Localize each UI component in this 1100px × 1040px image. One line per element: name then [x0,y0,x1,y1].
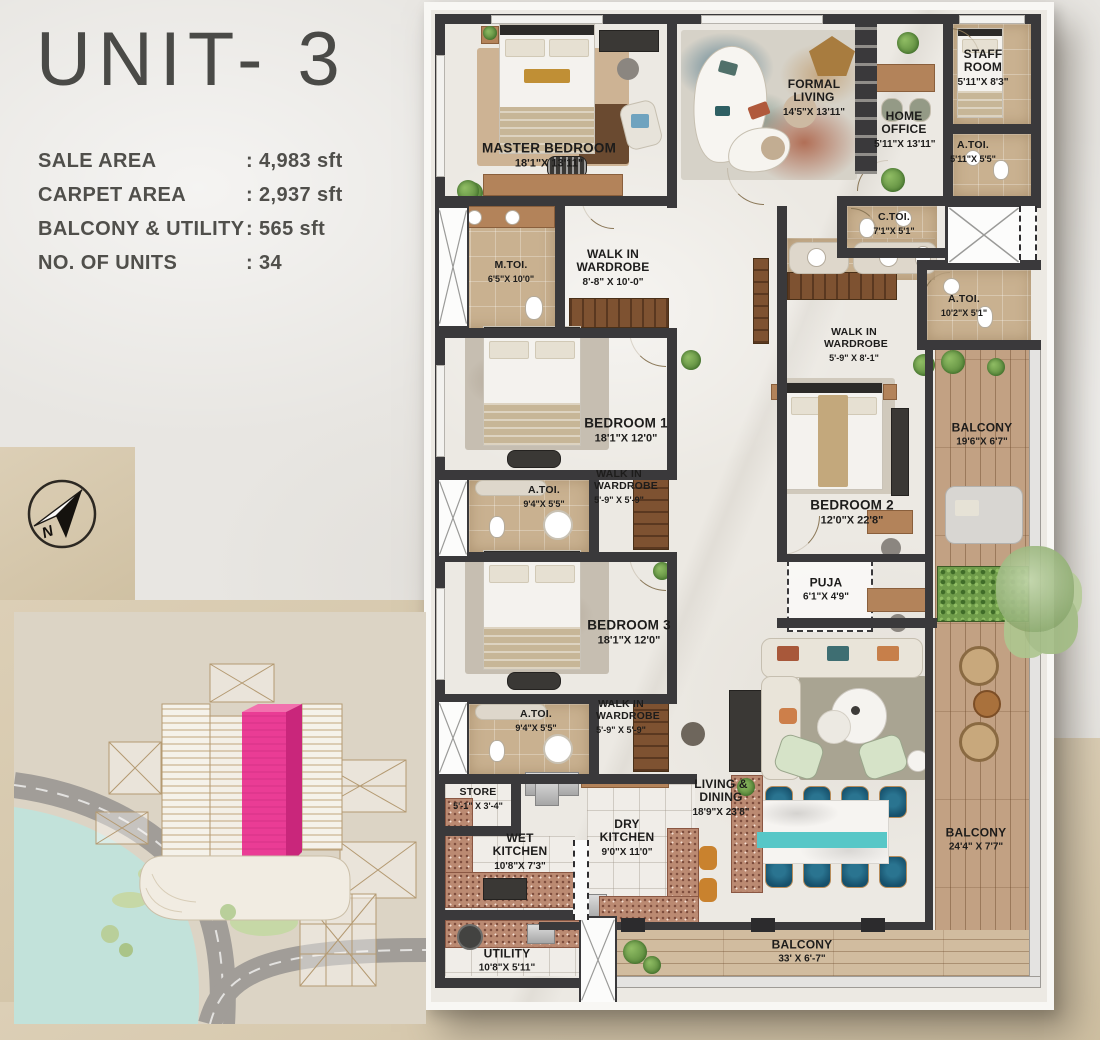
room-dims: 8'-8" X 10'-0" [574,277,652,288]
room-dims: 6'5"X 10'0" [466,274,556,284]
wall [435,328,677,338]
room-name: BEDROOM 1 [561,415,691,430]
room-name: WALK IN WARDROBE [594,469,644,493]
door-post [861,918,885,932]
pillow [489,341,529,359]
stat-row: BALCONY & UTILITY: 565 sft [38,218,383,252]
wall [555,196,565,338]
service-shaft [437,206,469,328]
window [959,15,1025,24]
bed-bench [507,450,561,468]
room-dims: 19'6"X 6'7" [937,437,1027,448]
wicker-chair [959,646,999,686]
room-dims: 18'1"X 12'0" [561,432,691,444]
basin [807,248,826,267]
room-name: DRY KITCHEN [592,818,662,845]
window [491,15,603,24]
stat-value: : 34 [246,252,282,275]
office-desk [871,64,935,92]
round-basin [543,510,573,540]
wall [943,124,1041,134]
room-name: LIVING & DINING [679,778,764,805]
door-arc [727,168,764,205]
room-dims: 18'1"X 13'11" [464,157,634,169]
room-name: M.TOI. [466,260,556,272]
cushion [631,114,649,128]
room-name: A.TOI. [491,709,581,721]
entry-door-dashed [1019,206,1037,260]
bar-chair [699,846,717,870]
room-dims: 10'2"X 5'1" [914,308,1014,318]
room-name: WALK IN WARDROBE [824,327,884,351]
room-label-home-office: HOME OFFICE5'11"X 13'11" [874,110,934,150]
page-title: UNIT- 3 [36,16,347,103]
room-dims: 5'-9" X 5'-9" [594,495,644,505]
room-name: HOME OFFICE [874,110,934,137]
room-name: A.TOI. [914,294,1014,306]
cushion [877,646,899,661]
toilet-wc [489,740,505,762]
plant [897,32,919,54]
wall [777,206,787,562]
room-label-wiw-bedroom3: WALK IN WARDROBE5'-9" X 5'-9" [596,699,646,735]
stat-label: BALCONY & UTILITY [38,218,244,241]
coffee-table-small [817,710,851,744]
tv-unit [891,408,909,496]
cooktop [483,878,527,900]
room-dims: 5'-9" X 5'-9" [596,725,646,735]
floorplan-brochure-page: { "panel": { "title": "UNIT- 3", "stats"… [0,0,1100,1040]
wall [777,618,937,628]
room-name: MASTER BEDROOM [464,140,634,155]
bed-bedroom2 [785,382,883,490]
stat-value: : 4,983 sft [246,150,343,173]
kitchen-partition-dashed [573,840,589,920]
room-dims: 14'5"X 13'11" [769,107,859,118]
stat-label: SALE AREA [38,150,156,173]
room-label-formal-living: FORMAL LIVING14'5"X 13'11" [769,78,859,118]
plant [483,26,497,40]
puja-desk [867,588,933,612]
room-label-bedroom-2: BEDROOM 212'0"X 22'8" [792,497,912,526]
dresser-desk [599,30,659,52]
headboard [786,383,882,393]
room-dims: 9'4"X 5'5" [491,723,581,733]
pouf [779,708,797,724]
room-label-bedroom-3: BEDROOM 318'1"X 12'0" [564,617,694,646]
room-label-living-dining: LIVING & DINING18'9"X 23'8" [679,778,764,818]
room-dims: 10'8"X 5'11" [457,963,557,974]
room-dims: 5'-1" X 3'-4" [438,801,518,811]
pillow [535,565,575,583]
wall [435,978,587,988]
north-compass-icon: N [20,472,104,556]
tree-canopy [996,546,1074,632]
wicker-chair [959,722,999,762]
stat-row: SALE AREA: 4,983 sft [38,150,383,184]
room-dims: 9'0"X 11'0" [592,847,662,858]
wall [435,774,697,784]
room-name: WALK IN WARDROBE [574,248,652,275]
room-dims: 18'1"X 12'0" [564,634,694,646]
room-dims: 5'11"X 5'5" [933,154,1013,164]
wall [917,340,1041,350]
wall [777,554,931,562]
outdoor-table [973,690,1001,718]
basin [505,210,520,225]
basin [467,210,482,225]
window [436,588,445,680]
room-label-wiw-bedroom2: WALK IN WARDROBE5'-9" X 8'-1" [824,327,884,363]
stat-value: : 565 sft [246,218,325,241]
bar-chair [699,878,717,902]
stat-value: : 2,937 sft [246,184,343,207]
room-name: BEDROOM 3 [564,617,694,632]
room-label-staff-room: STAFF ROOM5'11"X 8'3" [954,48,1012,88]
cushion [715,106,730,116]
nightstand [883,384,897,400]
room-label-balcony-right: BALCONY19'6"X 6'7" [937,422,1027,449]
room-dims: 10'8"X 7'3" [485,861,555,872]
stool [681,722,705,746]
pouf [761,136,785,160]
wall [435,552,677,562]
room-name: C.TOI. [849,212,939,224]
wardrobe-rack [787,272,897,300]
pillow [535,341,575,359]
bed-bench [507,672,561,690]
stat-row: CARPET AREA: 2,937 sft [38,184,383,218]
plant [681,350,701,370]
stat-label: CARPET AREA [38,184,186,207]
room-label-c-toi: C.TOI.7'1"X 5'1" [849,212,939,236]
pillow [549,39,589,57]
room-name: BALCONY [931,827,1021,840]
room-label-a-toi-bedroom3: A.TOI.9'4"X 5'5" [491,709,581,733]
corridor-console [753,258,769,344]
room-name: STAFF ROOM [954,48,1012,75]
pillow [505,39,545,57]
room-label-puja: PUJA6'1"X 4'9" [791,577,861,604]
room-name: BALCONY [937,422,1027,435]
floor-plan: MASTER BEDROOM18'1"X 13'11" FORMAL LIVIN… [431,10,1047,1002]
window [701,15,823,24]
room-dims: 33' X 6'-7" [747,954,857,965]
throw-pillow [524,69,570,83]
room-dims: 18'9"X 23'8" [679,807,764,818]
service-door [579,916,617,1002]
cushion [955,500,979,516]
room-dims: 5'-9" X 8'-1" [824,353,884,363]
window [436,365,445,457]
room-name: PUJA [791,577,861,590]
room-label-utility: UTILITY10'8"X 5'11" [457,948,557,975]
room-dims: 5'11"X 8'3" [954,77,1012,88]
room-dims: 24'4" X 7'7" [931,842,1021,853]
room-label-balcony-lower-right: BALCONY24'4" X 7'7" [931,827,1021,854]
wall [435,910,587,920]
cushion [827,646,849,661]
room-label-bedroom-1: BEDROOM 118'1"X 12'0" [561,415,691,444]
room-label-balcony-bottom: BALCONY33' X 6'-7" [747,939,857,966]
room-dims: 6'1"X 4'9" [791,592,861,603]
room-name: WET KITCHEN [485,832,555,859]
room-dims: 12'0"X 22'8" [792,514,912,526]
stat-row: NO. OF UNITS: 34 [38,252,383,286]
room-dims: 5'11"X 13'11" [874,139,934,150]
room-name: WALK IN WARDROBE [596,699,646,723]
headboard [500,25,594,35]
dining-table-runner [757,832,887,848]
wardrobe-rack [569,298,669,328]
dresser [483,174,623,196]
room-name: A.TOI. [499,485,589,497]
room-label-dry-kitchen: DRY KITCHEN9'0"X 11'0" [592,818,662,858]
wall [837,248,947,258]
stat-label: NO. OF UNITS [38,252,177,275]
desk-chair [617,58,639,80]
service-shaft [437,700,469,776]
room-label-a-toi-staff: A.TOI.5'11"X 5'5" [933,140,1013,164]
window [436,55,445,177]
room-name: STORE [438,787,518,799]
room-label-m-toi: M.TOI.6'5"X 10'0" [466,260,556,284]
plant [643,956,661,974]
bed-master [499,24,595,154]
bed-runner [818,395,848,487]
room-name: BEDROOM 2 [792,497,912,512]
lift-shaft [945,204,1023,266]
room-label-master-bedroom: MASTER BEDROOM18'1"X 13'11" [464,140,634,169]
room-label-wiw-bedroom1: WALK IN WARDROBE5'-9" X 5'-9" [594,469,644,505]
decor-item [851,706,860,715]
plant [987,358,1005,376]
room-name: A.TOI. [933,140,1013,152]
parapet-bottom [613,976,1041,988]
site-location-map [14,612,426,1024]
wall [667,328,677,480]
floor-plan-card: MASTER BEDROOM18'1"X 13'11" FORMAL LIVIN… [424,2,1054,1010]
room-name: UTILITY [457,948,557,961]
room-name: FORMAL LIVING [769,78,859,105]
door-post [751,918,775,932]
door-post [621,918,645,932]
room-label-a-toi-right: A.TOI.10'2"X 5'1" [914,294,1014,318]
service-shaft [437,478,469,558]
room-name: BALCONY [747,939,857,952]
toilet-wc [525,296,543,320]
bed-bedroom3 [483,550,581,670]
wall [667,14,677,208]
wall [1031,14,1041,208]
cushion [777,646,799,661]
pillow [489,565,529,583]
toilet-wc [489,516,505,538]
room-label-wiw-master: WALK IN WARDROBE8'-8" X 10'-0" [574,248,652,288]
blanket [958,91,1002,117]
room-label-wet-kitchen: WET KITCHEN10'8"X 7'3" [485,832,555,872]
wall [943,14,953,206]
room-label-a-toi-bedroom1: A.TOI.9'4"X 5'5" [499,485,589,509]
unit-stats: SALE AREA: 4,983 sft CARPET AREA: 2,937 … [38,150,383,286]
washing-machine [457,924,483,950]
room-dims: 7'1"X 5'1" [849,226,939,236]
room-dims: 9'4"X 5'5" [499,499,589,509]
round-basin [543,734,573,764]
plant [941,350,965,374]
room-label-store: STORE5'-1" X 3'-4" [438,787,518,811]
parapet-right [1029,344,1041,988]
